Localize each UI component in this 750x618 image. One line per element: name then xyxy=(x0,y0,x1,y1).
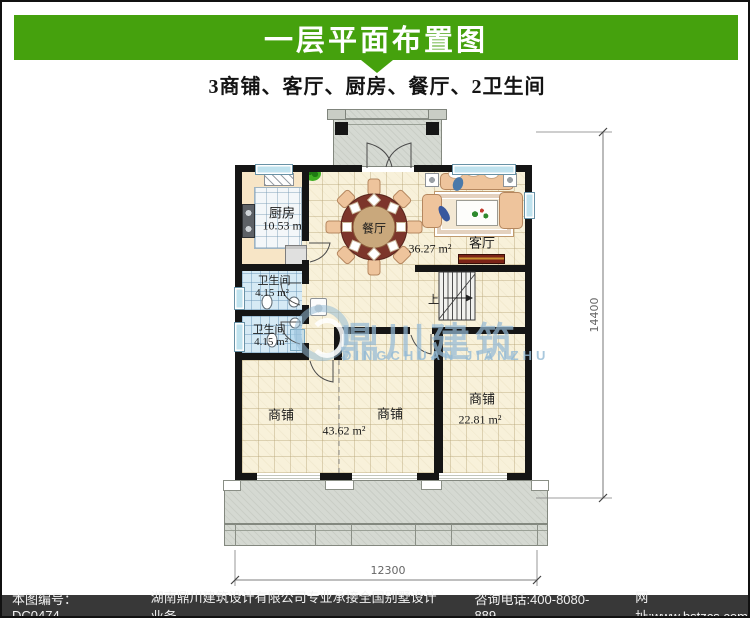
wall xyxy=(432,327,532,334)
wall xyxy=(525,165,532,192)
shop-right-label: 商铺 xyxy=(469,389,495,408)
living-label: 客厅 xyxy=(469,233,495,252)
page-subtitle: 3商铺、客厅、厨房、餐厅、2卫生间 xyxy=(2,70,750,99)
wall xyxy=(320,473,352,480)
step-divider xyxy=(235,524,236,546)
footer-company: 湖南鼎川建筑设计有限公司专业承接全国别墅设计业务 xyxy=(151,587,441,618)
step-divider xyxy=(415,524,416,546)
living-window-top xyxy=(452,164,516,175)
threshold xyxy=(439,475,507,476)
footer-drawing-no: 本图编号：DC0474 xyxy=(12,589,117,618)
threshold xyxy=(352,475,417,476)
wall xyxy=(415,265,532,272)
step-divider xyxy=(315,524,316,546)
footer-phone: 咨询电话:400-8080-889 xyxy=(474,589,601,618)
step-midline xyxy=(225,530,547,531)
step-divider xyxy=(351,524,352,546)
wall xyxy=(302,271,309,284)
title-bar: 一层平面布置图 xyxy=(14,15,738,60)
footer-bar: 本图编号：DC0474 湖南鼎川建筑设计有限公司专业承接全国别墅设计业务 咨询电… xyxy=(2,595,750,616)
wall xyxy=(342,327,410,334)
step-divider xyxy=(537,524,538,546)
tv-console xyxy=(458,254,505,264)
dimension-bottom-value: 12300 xyxy=(371,564,406,577)
dining-label: 餐厅 xyxy=(362,220,386,237)
wall xyxy=(507,473,532,480)
coffee-table xyxy=(456,200,498,226)
threshold xyxy=(439,478,507,479)
shopfront-steps xyxy=(224,524,548,546)
shop-middle-label: 商铺 xyxy=(377,404,403,423)
bath1-label: 卫生间 xyxy=(258,272,291,288)
bath2-area: 4.15 m² xyxy=(254,336,288,348)
washer xyxy=(310,298,327,316)
page: 一层平面布置图 3商铺、客厅、厨房、餐厅、2卫生间 xyxy=(0,0,750,618)
threshold xyxy=(257,478,320,479)
wall xyxy=(414,165,452,172)
wall xyxy=(434,334,443,473)
wall xyxy=(525,217,532,480)
door-step xyxy=(325,480,354,490)
door-step xyxy=(531,480,549,491)
wall xyxy=(235,353,309,360)
shop-middle-area: 43.62 m² xyxy=(323,424,366,439)
wall xyxy=(417,473,439,480)
armchair-right xyxy=(499,192,523,229)
bath2-window xyxy=(234,322,245,352)
kitchen-sink xyxy=(242,204,255,238)
porch-pillar-left xyxy=(327,109,346,120)
porch-rail-line xyxy=(339,118,434,125)
side-table-right xyxy=(503,173,517,187)
bath2-label: 卫生间 xyxy=(253,321,286,337)
page-title: 一层平面布置图 xyxy=(264,17,488,59)
dimension-right: 14400 xyxy=(536,128,612,502)
step-divider xyxy=(451,524,452,546)
shopfront-porch xyxy=(224,480,548,524)
dimension-bottom: 12300 xyxy=(231,550,541,586)
shop-right-area: 22.81 m² xyxy=(459,413,502,428)
dining-area: 36.27 m² xyxy=(409,242,452,257)
wall xyxy=(334,327,342,360)
door-step xyxy=(223,480,241,491)
wall xyxy=(235,264,309,271)
threshold xyxy=(352,478,417,479)
living-window-right xyxy=(524,192,535,219)
porch-column-right xyxy=(426,122,439,135)
door-step xyxy=(421,480,442,490)
wall xyxy=(235,473,257,480)
kitchen-area: 10.53 m² xyxy=(263,219,306,234)
kitchen-window xyxy=(255,164,293,175)
wall xyxy=(235,310,309,316)
wall xyxy=(235,350,242,480)
porch-column-left xyxy=(335,122,348,135)
bath1-window xyxy=(234,287,245,310)
side-table-left xyxy=(425,173,439,187)
dimension-right-value: 14400 xyxy=(588,298,601,333)
wall xyxy=(302,305,309,324)
porch-pillar-right xyxy=(428,109,447,120)
bath1-area: 4.15 m² xyxy=(255,287,289,299)
shop-left-label: 商铺 xyxy=(268,405,294,424)
footer-website: 网址:www.bstzcs.com xyxy=(635,587,750,618)
threshold xyxy=(257,475,320,476)
